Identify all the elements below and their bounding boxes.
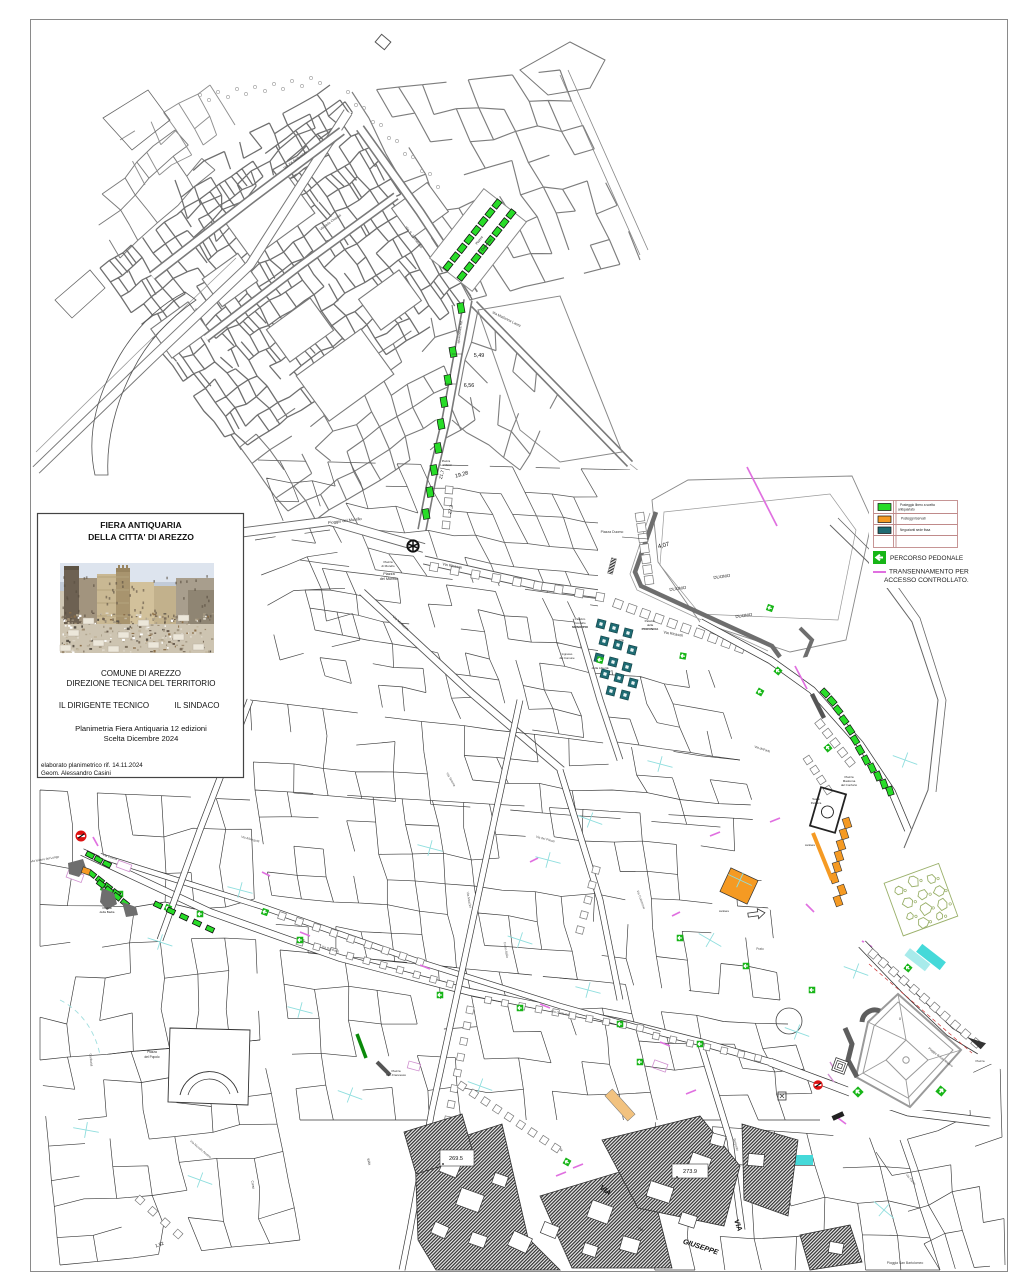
svg-text:del Conforto: del Conforto xyxy=(841,783,858,787)
svg-text:DIREZIONE TECNICA DEL TERRITOR: DIREZIONE TECNICA DEL TERRITORIO xyxy=(66,679,215,688)
svg-text:269.5: 269.5 xyxy=(449,1156,463,1162)
svg-text:Geom. Alessandro Casini: Geom. Alessandro Casini xyxy=(41,770,111,777)
svg-text:6,56: 6,56 xyxy=(464,383,475,389)
svg-text:del Popolo: del Popolo xyxy=(144,1055,159,1059)
svg-text:cantiere: cantiere xyxy=(719,909,730,913)
svg-text:del Comune: del Comune xyxy=(559,656,575,660)
svg-text:IL DIRIGENTE TECNICO: IL DIRIGENTE TECNICO xyxy=(59,701,149,710)
svg-text:273.9: 273.9 xyxy=(683,1169,697,1175)
svg-text:TRANSENNAMENTO PER: TRANSENNAMENTO PER xyxy=(889,569,969,576)
svg-text:della Libertà: della Libertà xyxy=(592,666,609,670)
svg-text:IL SINDACO: IL SINDACO xyxy=(174,701,219,710)
svg-text:FIERA ANTIQUARIA: FIERA ANTIQUARIA xyxy=(100,520,181,530)
svg-text:Scelta Dicembre 2024: Scelta Dicembre 2024 xyxy=(104,734,179,743)
svg-text:Piazza: Piazza xyxy=(147,1050,157,1054)
svg-text:Posteggio libero a scelta: Posteggio libero a scelta xyxy=(900,503,935,507)
svg-text:di Murello: di Murello xyxy=(381,564,394,568)
svg-text:della Badia: della Badia xyxy=(100,910,115,914)
svg-text:Negozianti sede fissa: Negozianti sede fissa xyxy=(900,528,931,532)
svg-text:Piazza: Piazza xyxy=(614,638,624,642)
svg-text:Planimetria Fiera Antiquaria 1: Planimetria Fiera Antiquaria 12 edizioni xyxy=(75,724,207,733)
svg-text:Petrarca: Petrarca xyxy=(811,801,822,805)
svg-text:cantiere: cantiere xyxy=(805,843,816,847)
svg-text:COMUNE DI AREZZO: COMUNE DI AREZZO xyxy=(101,669,181,678)
svg-text:elaborato planimetrico rif. 14: elaborato planimetrico rif. 14.11.2024 xyxy=(41,762,143,769)
svg-text:DELLA CITTA' DI AREZZO: DELLA CITTA' DI AREZZO xyxy=(88,532,194,542)
svg-text:Pioggia San Bartolomeo: Pioggia San Bartolomeo xyxy=(887,1261,924,1265)
svg-text:5,49: 5,49 xyxy=(474,353,485,359)
svg-text:Piazza: Piazza xyxy=(383,572,395,576)
svg-text:Landucci: Landucci xyxy=(440,463,452,467)
svg-text:ACCESSO CONTROLLATO.: ACCESSO CONTROLLATO. xyxy=(884,577,969,584)
svg-text:Prato: Prato xyxy=(756,947,764,951)
svg-text:PERCORSO PEDONALE: PERCORSO PEDONALE xyxy=(890,555,963,562)
svg-text:antiquariato: antiquariato xyxy=(898,508,915,512)
svg-text:Piazza: Piazza xyxy=(975,1059,984,1063)
svg-text:Posteggi riservati: Posteggi riservati xyxy=(901,517,926,521)
svg-text:San Francesco: San Francesco xyxy=(386,1073,407,1077)
svg-text:del Murello: del Murello xyxy=(380,577,399,581)
svg-text:PROVINCIA: PROVINCIA xyxy=(642,627,660,631)
svg-text:Piazza Duomo: Piazza Duomo xyxy=(601,530,624,534)
svg-text:MUNICIPIO: MUNICIPIO xyxy=(572,625,589,629)
svg-text:8: 8 xyxy=(899,1017,901,1021)
